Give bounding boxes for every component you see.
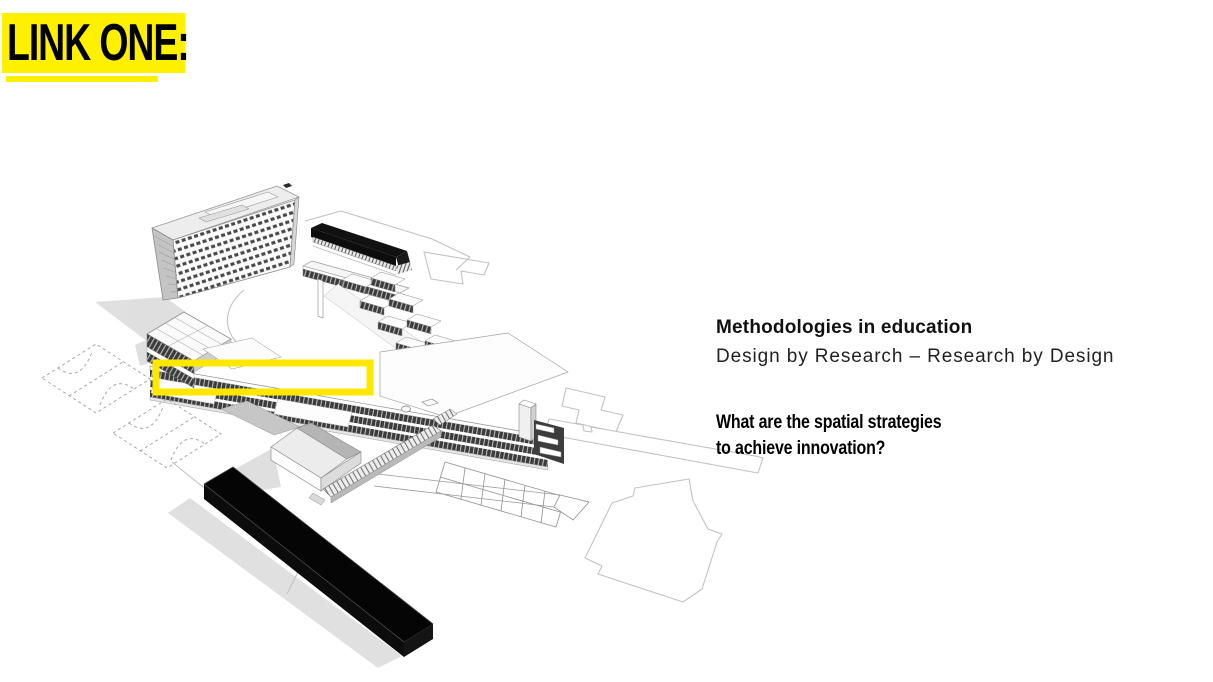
question-line-2: to achieve innovation? xyxy=(716,436,1111,462)
question-block: What are the spatial strategies to achie… xyxy=(716,410,1186,462)
slide-title: Methodologies in education xyxy=(716,317,1186,339)
question-line-1: What are the spatial strategies xyxy=(716,410,1111,436)
presentation-slide: LINK ONE: xyxy=(0,0,1213,682)
panelled-ramp xyxy=(374,462,589,527)
slide-subtitle: Design by Research – Research by Design xyxy=(716,346,1186,368)
slab-tower-building xyxy=(152,183,299,300)
text-block: Methodologies in education Design by Res… xyxy=(716,317,1186,462)
